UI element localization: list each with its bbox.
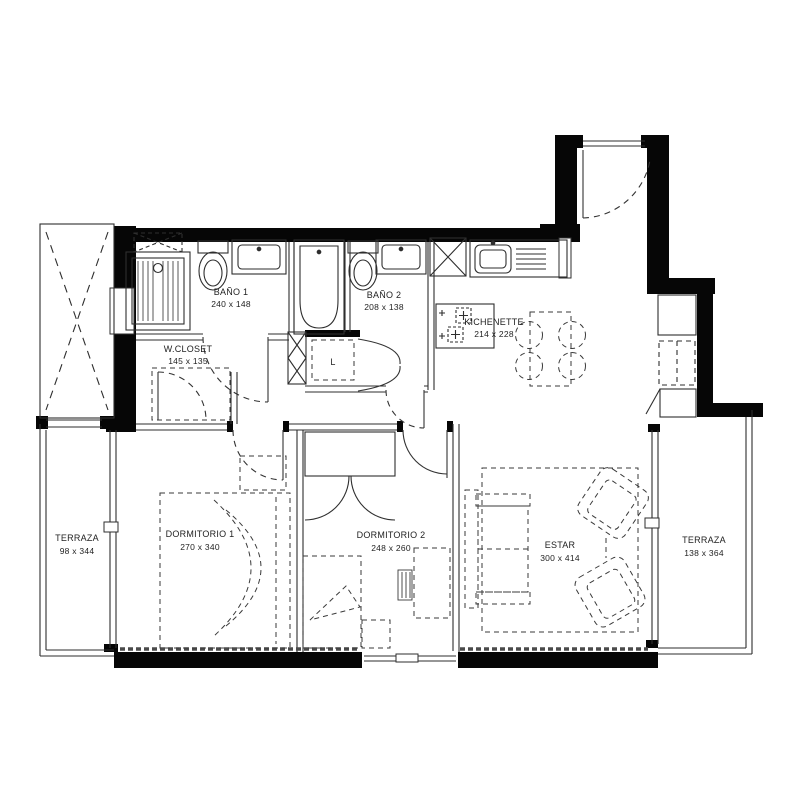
patio-shaft-x [46, 232, 108, 410]
sofa-arm-top [476, 494, 530, 506]
floor-plan-page: BAÑO 1 240 x 148 BAÑO 2 208 x 138 W.CLOS… [0, 0, 800, 800]
entry-door-swing [583, 160, 650, 218]
nightstand-dorm1 [240, 456, 286, 490]
toilet1-tank [198, 241, 228, 253]
vanity1-faucet [257, 247, 261, 251]
desk-chair-hatch [402, 572, 410, 598]
toilet-2 [348, 241, 378, 290]
sofa-back [465, 490, 478, 608]
wall-entry-right-column [647, 135, 669, 287]
label-bano1: BAÑO 1 [214, 287, 249, 297]
sink-vanity-2 [376, 240, 426, 274]
label-laundry: L [330, 357, 335, 367]
wcloset-door-swing [158, 372, 206, 420]
sofa-seat [478, 506, 528, 592]
desk-dorm2 [414, 548, 450, 618]
wcloset-east-wall [231, 372, 237, 424]
bed-dorm1 [160, 493, 290, 648]
kitchen-drainboard [516, 249, 546, 269]
dining-chair-4 [559, 353, 586, 380]
toilet2-bowl-inner [354, 260, 372, 286]
sofa-arm-bottom [476, 592, 530, 604]
dorm2-door-swing [403, 430, 447, 474]
dims-terraza-izq: 98 x 344 [60, 546, 95, 556]
bed-dorm2-blanket [310, 586, 360, 620]
hall-cabinet [660, 389, 696, 417]
label-estar: ESTAR [545, 540, 576, 550]
label-wcloset: W.CLOSET [164, 344, 213, 354]
bathtub-niche-walls [289, 242, 350, 332]
armchair-2 [572, 554, 648, 630]
partition-walls [40, 141, 752, 656]
dorm1-door-swing [233, 430, 283, 480]
wall-terraza-right-top [697, 403, 763, 417]
window-mullion [396, 654, 418, 662]
duct-box [288, 332, 306, 384]
wardrobe-door-left-swing [305, 476, 349, 520]
terraza-right-walls [658, 410, 752, 654]
partition-dorm1-dorm2 [297, 430, 303, 652]
label-terraza-izq: TERRAZA [55, 533, 99, 543]
dims-dormitorio1: 270 x 340 [180, 542, 220, 552]
sink-vanity-1 [232, 240, 286, 274]
bano1-south-wall [136, 334, 289, 340]
bed-dorm2 [303, 556, 361, 648]
label-dormitorio1: DORMITORIO 1 [166, 529, 235, 539]
bed-dorm1-duvet-outer [214, 500, 251, 636]
window-bottom-center [362, 651, 458, 669]
dims-kichenette: 214 x 228 [474, 329, 514, 339]
room-labels: BAÑO 1 240 x 148 BAÑO 2 208 x 138 W.CLOS… [55, 287, 726, 563]
bathtub-basin [300, 246, 338, 328]
bathroom-fixtures [126, 240, 426, 334]
kitchen-partition [428, 242, 434, 390]
kitchen-faucet [491, 241, 495, 245]
structural-walls [36, 135, 763, 668]
partition-dorm2-estar [453, 424, 459, 652]
duct-x [288, 332, 306, 384]
dining-chair-2 [516, 353, 543, 380]
wall-right-column [697, 287, 713, 409]
bano2-door-swing [386, 390, 424, 428]
label-kichenette: KICHENETTE [464, 317, 524, 327]
handle-terraza-right [645, 518, 659, 528]
jamb-dorm1-a [227, 421, 233, 432]
armchair-2-seat [585, 567, 636, 620]
bathtub [294, 240, 344, 334]
dims-bano1: 240 x 148 [211, 299, 251, 309]
burner-2-cross [451, 330, 460, 339]
jamb-dorm2-a [397, 421, 403, 432]
hall-cabinet-door [646, 389, 660, 414]
shower-drain [154, 264, 163, 273]
shafts [40, 224, 466, 418]
laundry-closet-doors [358, 339, 400, 391]
patio-shaft-box [40, 224, 114, 418]
label-dormitorio2: DORMITORIO 2 [357, 530, 426, 540]
hall-closet [658, 295, 696, 335]
dining-chair-3 [559, 322, 586, 349]
armchair-2-outline [572, 554, 648, 630]
desk-chair-dorm2 [398, 570, 412, 600]
dims-bano2: 208 x 138 [364, 302, 404, 312]
hall-closets [646, 295, 696, 417]
kitchen-shaft-x [430, 238, 466, 276]
jamb-dorm1-b [283, 421, 289, 432]
jamb-dorm2-b [447, 421, 453, 432]
toilet2-tank [348, 241, 378, 253]
toilet1-bowl-inner [204, 260, 222, 286]
wardrobe-dorm2-box [305, 432, 395, 476]
armchair-1 [574, 464, 652, 542]
toilet-1 [198, 241, 228, 290]
rug-estar [482, 468, 638, 632]
glass-wall-right [652, 430, 658, 644]
bano1-door-swing [203, 337, 268, 402]
handle-terraza-left [104, 522, 118, 532]
toilet2-bowl [349, 252, 377, 290]
label-terraza-der: TERRAZA [682, 535, 726, 545]
dims-dormitorio2: 248 x 260 [371, 543, 411, 553]
wcloset-area [152, 368, 230, 420]
kitchen-sink-inner [480, 250, 506, 268]
entry-door-head [583, 141, 645, 146]
label-bano2: BAÑO 2 [367, 290, 402, 300]
toilet1-bowl [199, 252, 227, 290]
glass-wall-left [110, 430, 116, 648]
dims-estar: 300 x 414 [540, 553, 580, 563]
armchair-1-outline [574, 464, 652, 542]
dims-wcloset: 145 x 135 [168, 356, 208, 366]
bathtub-drain [317, 250, 321, 254]
vanity2-faucet [399, 247, 403, 251]
bed-dorm1-duvet-inner [226, 510, 261, 626]
cooktop-knobs [439, 310, 445, 339]
nightstand-dorm2 [362, 620, 390, 648]
wall-entry-top-left [555, 135, 583, 148]
dims-terraza-der: 138 x 364 [684, 548, 724, 558]
mid-walls [136, 424, 397, 430]
wall-entry-left-jamb [555, 135, 577, 236]
wardrobe-door-right-swing [351, 476, 395, 520]
floor-plan-drawing: BAÑO 1 240 x 148 BAÑO 2 208 x 138 W.CLOS… [0, 0, 800, 800]
entry-pilaster [559, 238, 571, 278]
wardrobe-dorm2 [305, 432, 395, 520]
